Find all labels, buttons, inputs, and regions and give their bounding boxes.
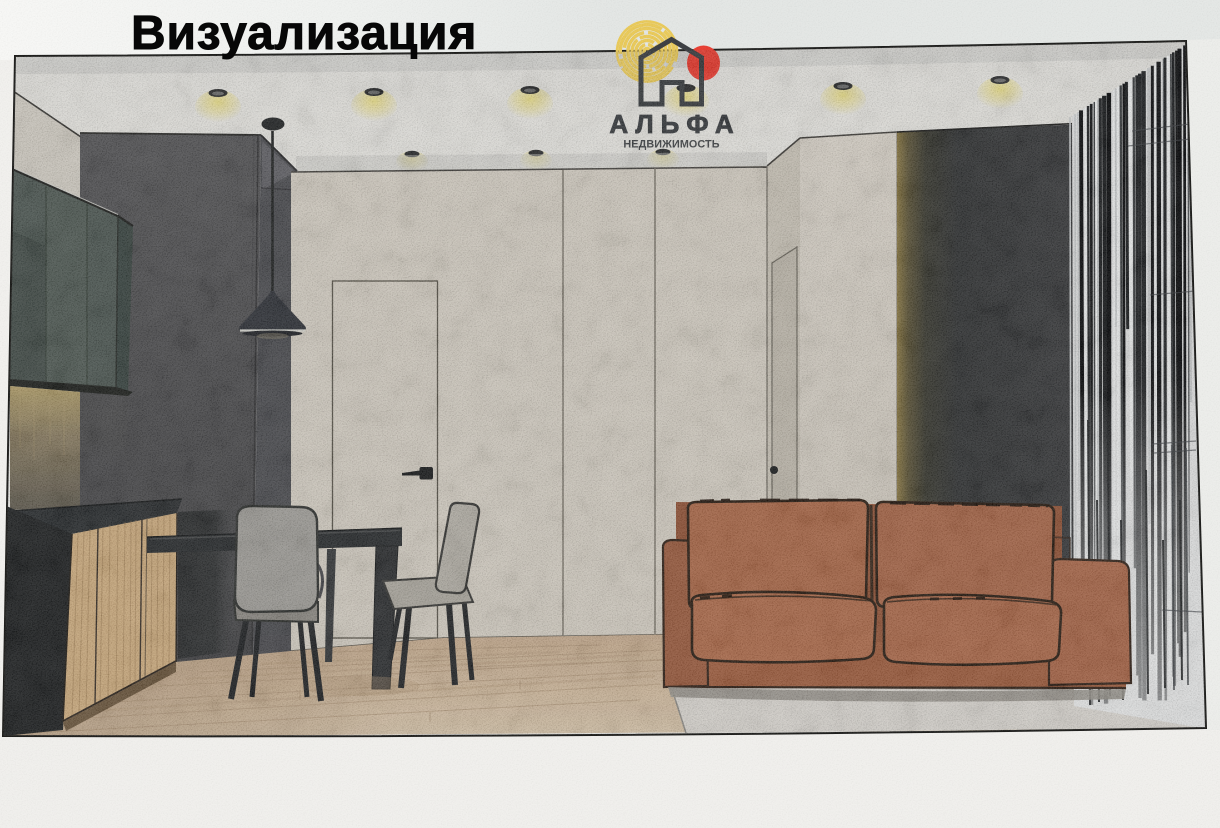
svg-text:Визуализация: Визуализация [131,7,477,60]
